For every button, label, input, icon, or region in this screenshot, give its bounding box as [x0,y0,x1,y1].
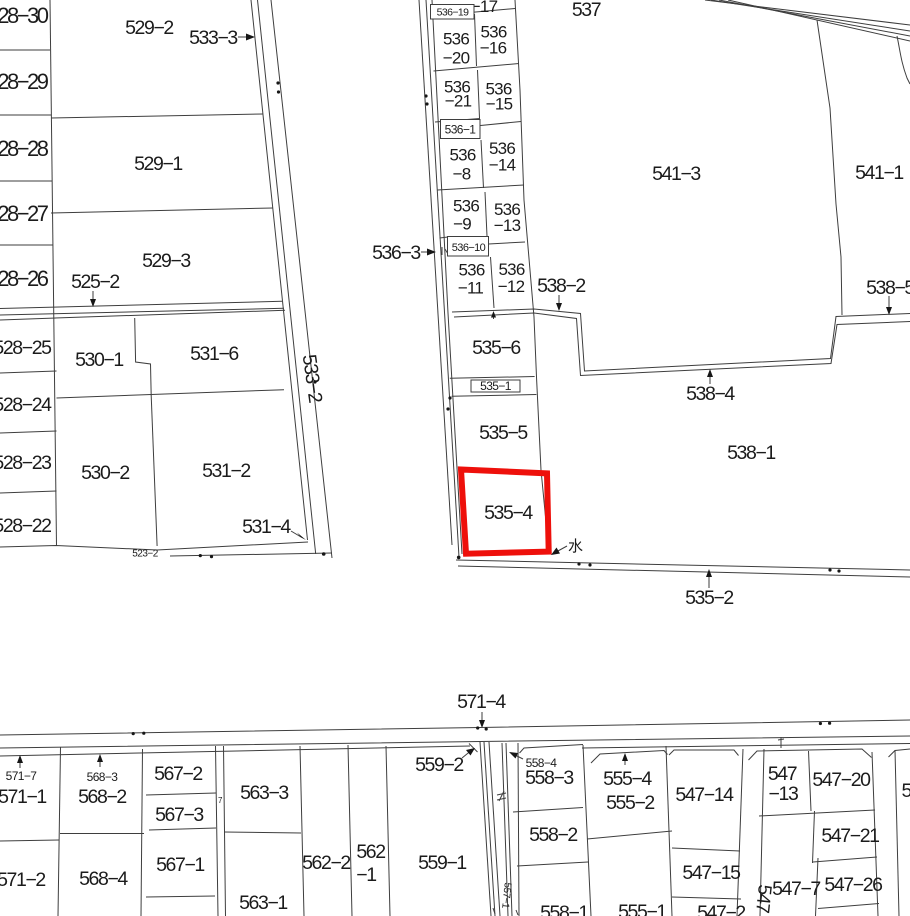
svg-text:536−3: 536−3 [372,242,420,264]
svg-text:538−5: 538−5 [866,277,910,299]
svg-text:571−2: 571−2 [0,869,45,891]
svg-text:525−2: 525−2 [71,271,119,293]
svg-text:537: 537 [572,0,601,21]
svg-text:528−30: 528−30 [0,3,49,28]
svg-text:529−1: 529−1 [134,153,182,175]
svg-text:529−3: 529−3 [142,250,190,272]
svg-text:538−1: 538−1 [727,442,775,464]
svg-text:528−26: 528−26 [0,266,49,291]
svg-text:528−24: 528−24 [0,394,52,416]
svg-text:567−3: 567−3 [155,804,203,826]
svg-text:547: 547 [751,883,775,913]
svg-text:528−25: 528−25 [0,337,52,359]
svg-text:541−1: 541−1 [855,162,903,184]
svg-text:−11: −11 [458,279,484,298]
svg-text:530−1: 530−1 [75,349,123,371]
svg-text:−12: −12 [498,277,525,296]
svg-text:563−1: 563−1 [239,892,287,914]
svg-text:567−1: 567−1 [156,854,204,876]
svg-text:568−4: 568−4 [79,868,128,890]
svg-text:−13: −13 [494,216,521,235]
svg-text:528−28: 528−28 [0,136,49,161]
svg-text:−16: −16 [480,39,507,58]
svg-text:−20: −20 [443,49,470,68]
svg-text:−15: −15 [486,95,513,114]
svg-text:555−4: 555−4 [603,768,652,790]
svg-text:547−14: 547−14 [675,784,734,806]
svg-text:531−4: 531−4 [242,516,291,538]
svg-text:536: 536 [450,146,476,165]
svg-text:529−2: 529−2 [125,17,173,39]
svg-text:528−27: 528−27 [0,201,49,226]
svg-text:558−3: 558−3 [525,767,573,789]
svg-text:555−2: 555−2 [606,792,654,814]
svg-text:533−3: 533−3 [189,27,237,49]
svg-text:568−3: 568−3 [87,770,119,784]
svg-text:567−2: 567−2 [154,763,202,785]
svg-text:541−3: 541−3 [652,163,700,185]
svg-text:547−2: 547−2 [697,902,745,916]
svg-text:547−15: 547−15 [682,862,741,884]
svg-text:547−21: 547−21 [821,825,879,847]
svg-text:558−1: 558−1 [540,902,588,916]
svg-text:535−2: 535−2 [685,587,733,609]
svg-text:563−3: 563−3 [240,782,288,804]
svg-text:528−23: 528−23 [0,452,51,474]
svg-text:536−10: 536−10 [452,242,486,254]
svg-text:535−6: 535−6 [472,337,520,359]
svg-text:571−1: 571−1 [0,786,46,808]
svg-text:536: 536 [459,261,485,280]
svg-text:562−2: 562−2 [302,852,350,874]
svg-text:538−2: 538−2 [537,275,585,297]
svg-text:531−6: 531−6 [190,343,238,365]
svg-text:−13: −13 [769,783,798,805]
svg-text:568−2: 568−2 [78,786,126,808]
svg-text:547−20: 547−20 [812,769,871,791]
svg-text:547−26: 547−26 [824,874,882,896]
svg-text:531−2: 531−2 [202,460,250,482]
svg-text:536−1: 536−1 [445,123,477,137]
svg-text:530−2: 530−2 [81,462,129,484]
svg-text:571−4: 571−4 [457,691,506,713]
svg-text:559−2: 559−2 [415,754,463,776]
svg-text:528−29: 528−29 [0,69,49,94]
svg-text:555−1: 555−1 [618,901,666,916]
svg-text:水: 水 [568,538,583,555]
svg-text:547: 547 [768,763,797,785]
svg-text:536−19: 536−19 [437,7,469,19]
svg-text:523−2: 523−2 [132,549,159,560]
svg-text:−9: −9 [453,215,471,234]
svg-text:−8: −8 [453,165,471,184]
svg-text:54: 54 [902,780,910,802]
svg-text:538−4: 538−4 [686,383,735,405]
svg-text:535−5: 535−5 [479,422,528,444]
svg-text:536: 536 [443,30,469,49]
svg-text:535−1: 535−1 [480,379,512,393]
svg-text:−21: −21 [445,92,472,111]
svg-text:558−2: 558−2 [529,824,577,846]
svg-text:535−4: 535−4 [484,502,533,524]
svg-text:559−1: 559−1 [418,852,466,874]
svg-text:−1: −1 [356,864,376,886]
svg-text:−14: −14 [489,156,516,175]
svg-text:547−7: 547−7 [772,878,820,900]
svg-text:−17: −17 [471,0,498,16]
svg-text:571−7: 571−7 [6,769,38,783]
svg-text:536: 536 [453,197,479,216]
svg-text:528−22: 528−22 [0,515,51,537]
svg-text:562: 562 [356,841,385,863]
